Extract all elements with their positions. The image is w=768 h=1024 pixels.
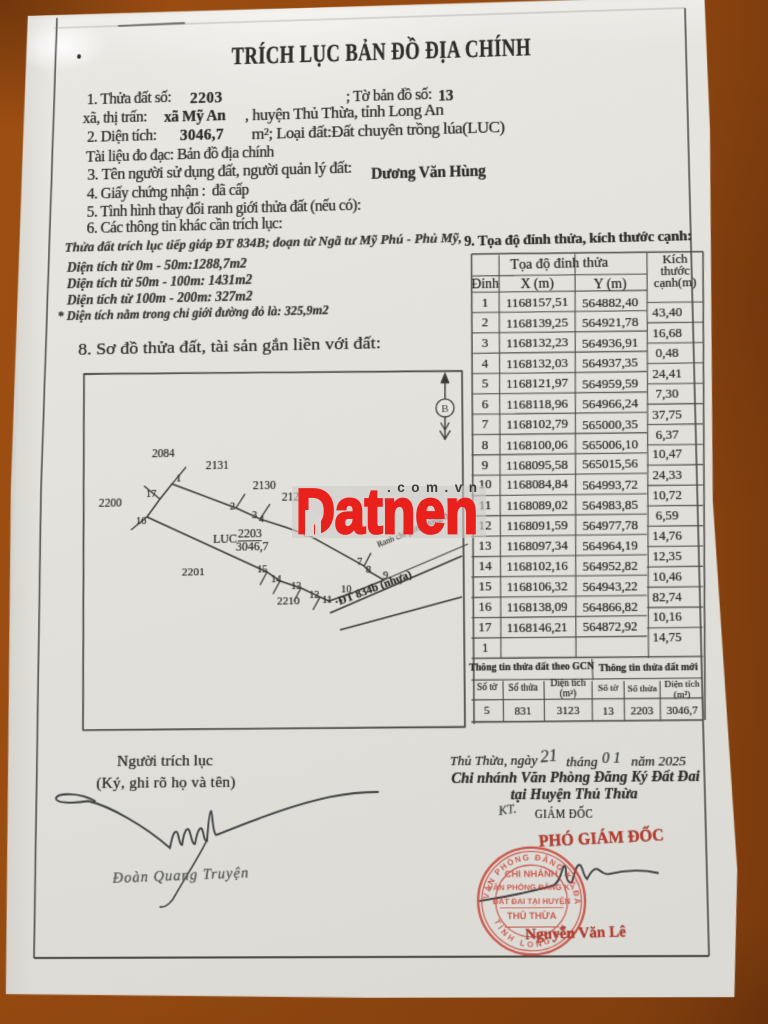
svg-text:THỦ THỪA: THỦ THỪA [507, 909, 557, 922]
svg-text:VĂN PHÒNG ĐĂNG KÝ: VĂN PHÒNG ĐĂNG KÝ [488, 882, 576, 893]
svg-text:ĐẤT ĐAI TẠI HUYỆN: ĐẤT ĐAI TẠI HUYỆN [493, 895, 571, 907]
svg-text:CHI NHÁNH: CHI NHÁNH [505, 867, 558, 880]
svg-text:B: B [441, 404, 449, 416]
